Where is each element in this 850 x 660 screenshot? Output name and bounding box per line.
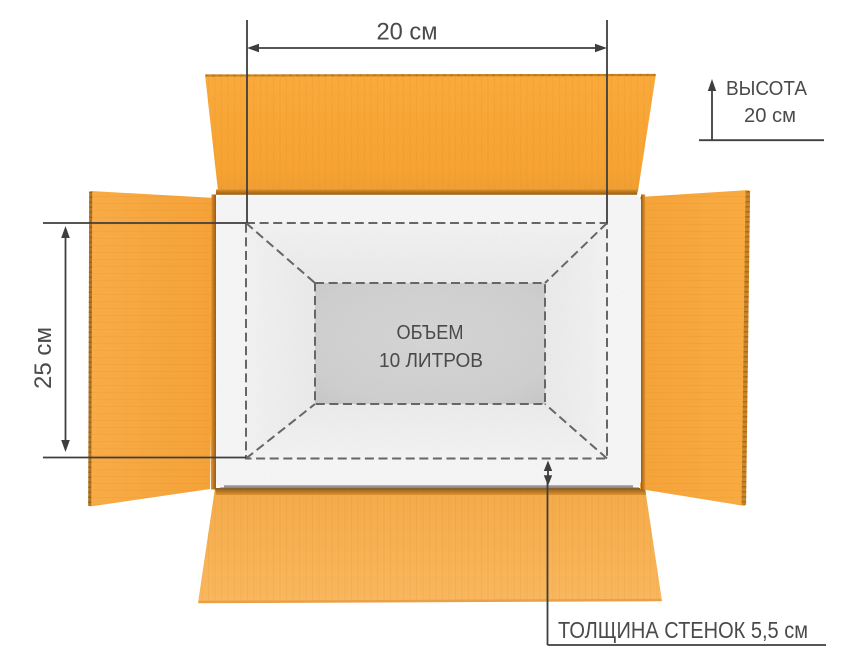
svg-text:20 см: 20 см [377, 19, 438, 46]
svg-text:ВЫСОТА: ВЫСОТА [726, 78, 808, 100]
svg-text:20 см: 20 см [744, 105, 796, 127]
svg-text:25 см: 25 см [30, 327, 57, 389]
svg-text:ОБЪЕМ: ОБЪЕМ [397, 322, 464, 344]
svg-text:10 ЛИТРОВ: 10 ЛИТРОВ [379, 350, 483, 372]
svg-text:ТОЛЩИНА СТЕНОК 5,5 см: ТОЛЩИНА СТЕНОК 5,5 см [558, 617, 808, 643]
